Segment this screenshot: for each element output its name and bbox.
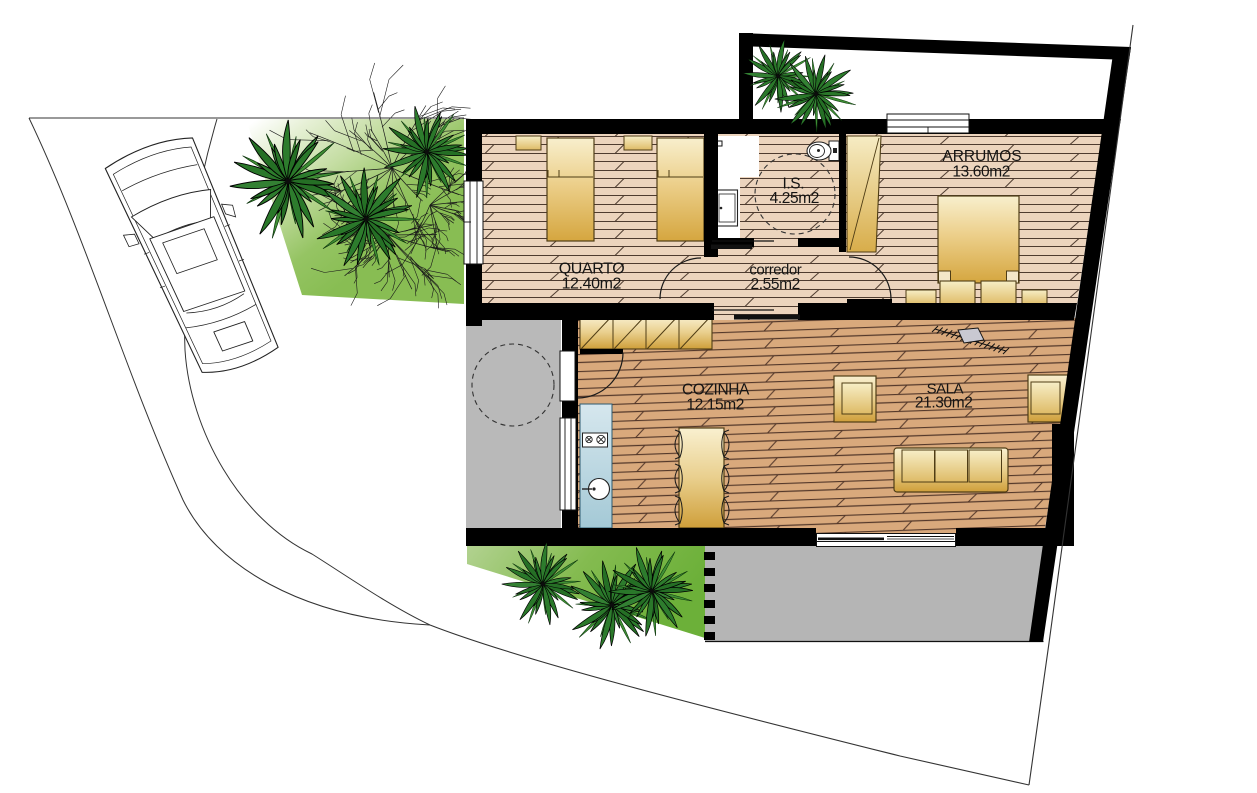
svg-text:2.55m2: 2.55m2 [751, 276, 800, 293]
svg-text:12.40m2: 12.40m2 [562, 276, 622, 293]
svg-text:4.25m2: 4.25m2 [770, 190, 819, 207]
svg-text:21.30m2: 21.30m2 [915, 395, 973, 412]
svg-text:12.15m2: 12.15m2 [686, 397, 744, 414]
svg-text:13.60m2: 13.60m2 [952, 163, 1010, 180]
